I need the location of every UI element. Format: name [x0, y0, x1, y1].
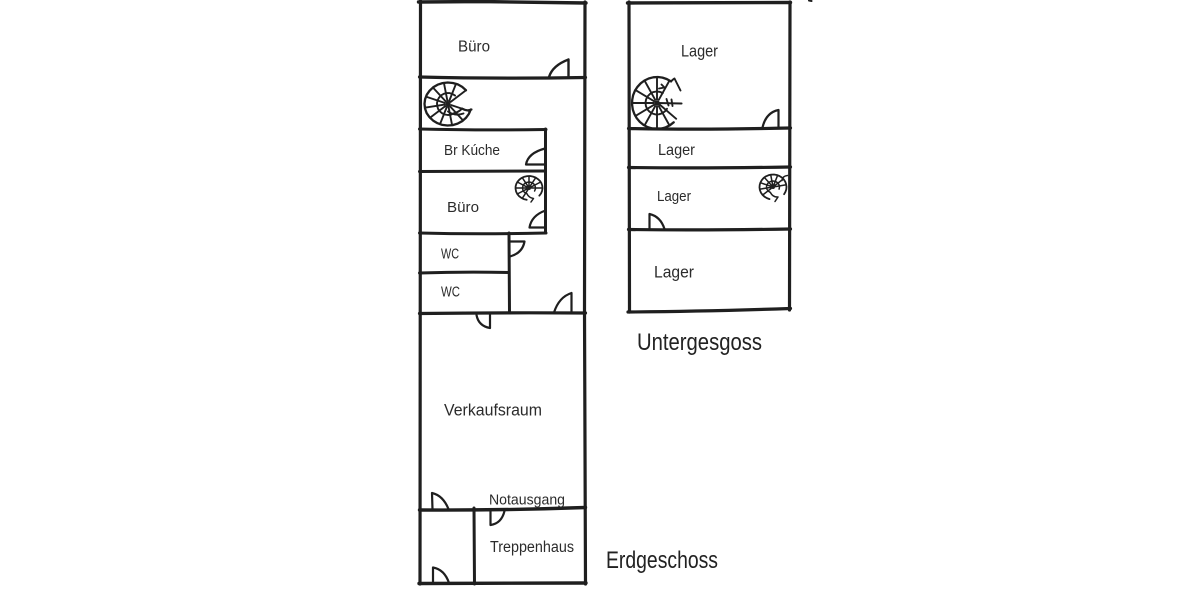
svg-text:Lager: Lager — [657, 188, 691, 205]
svg-text:Lager: Lager — [681, 42, 718, 61]
svg-text:WC: WC — [441, 284, 460, 301]
svg-text:Treppenhaus: Treppenhaus — [490, 539, 574, 556]
svg-text:Notausgang: Notausgang — [489, 492, 565, 509]
svg-text:Erdgeschoss: Erdgeschoss — [606, 547, 718, 574]
svg-text:Br Kúche: Br Kúche — [444, 142, 500, 159]
svg-text:Lager: Lager — [654, 263, 694, 282]
svg-text:Büro: Büro — [458, 39, 490, 56]
svg-text:WC: WC — [441, 246, 459, 263]
svg-text:Büro: Büro — [447, 199, 479, 216]
svg-text:Untergesgoss: Untergesgoss — [637, 329, 762, 356]
svg-text:Verkaufsraum: Verkaufsraum — [444, 401, 542, 420]
svg-text:Lager: Lager — [658, 142, 696, 159]
